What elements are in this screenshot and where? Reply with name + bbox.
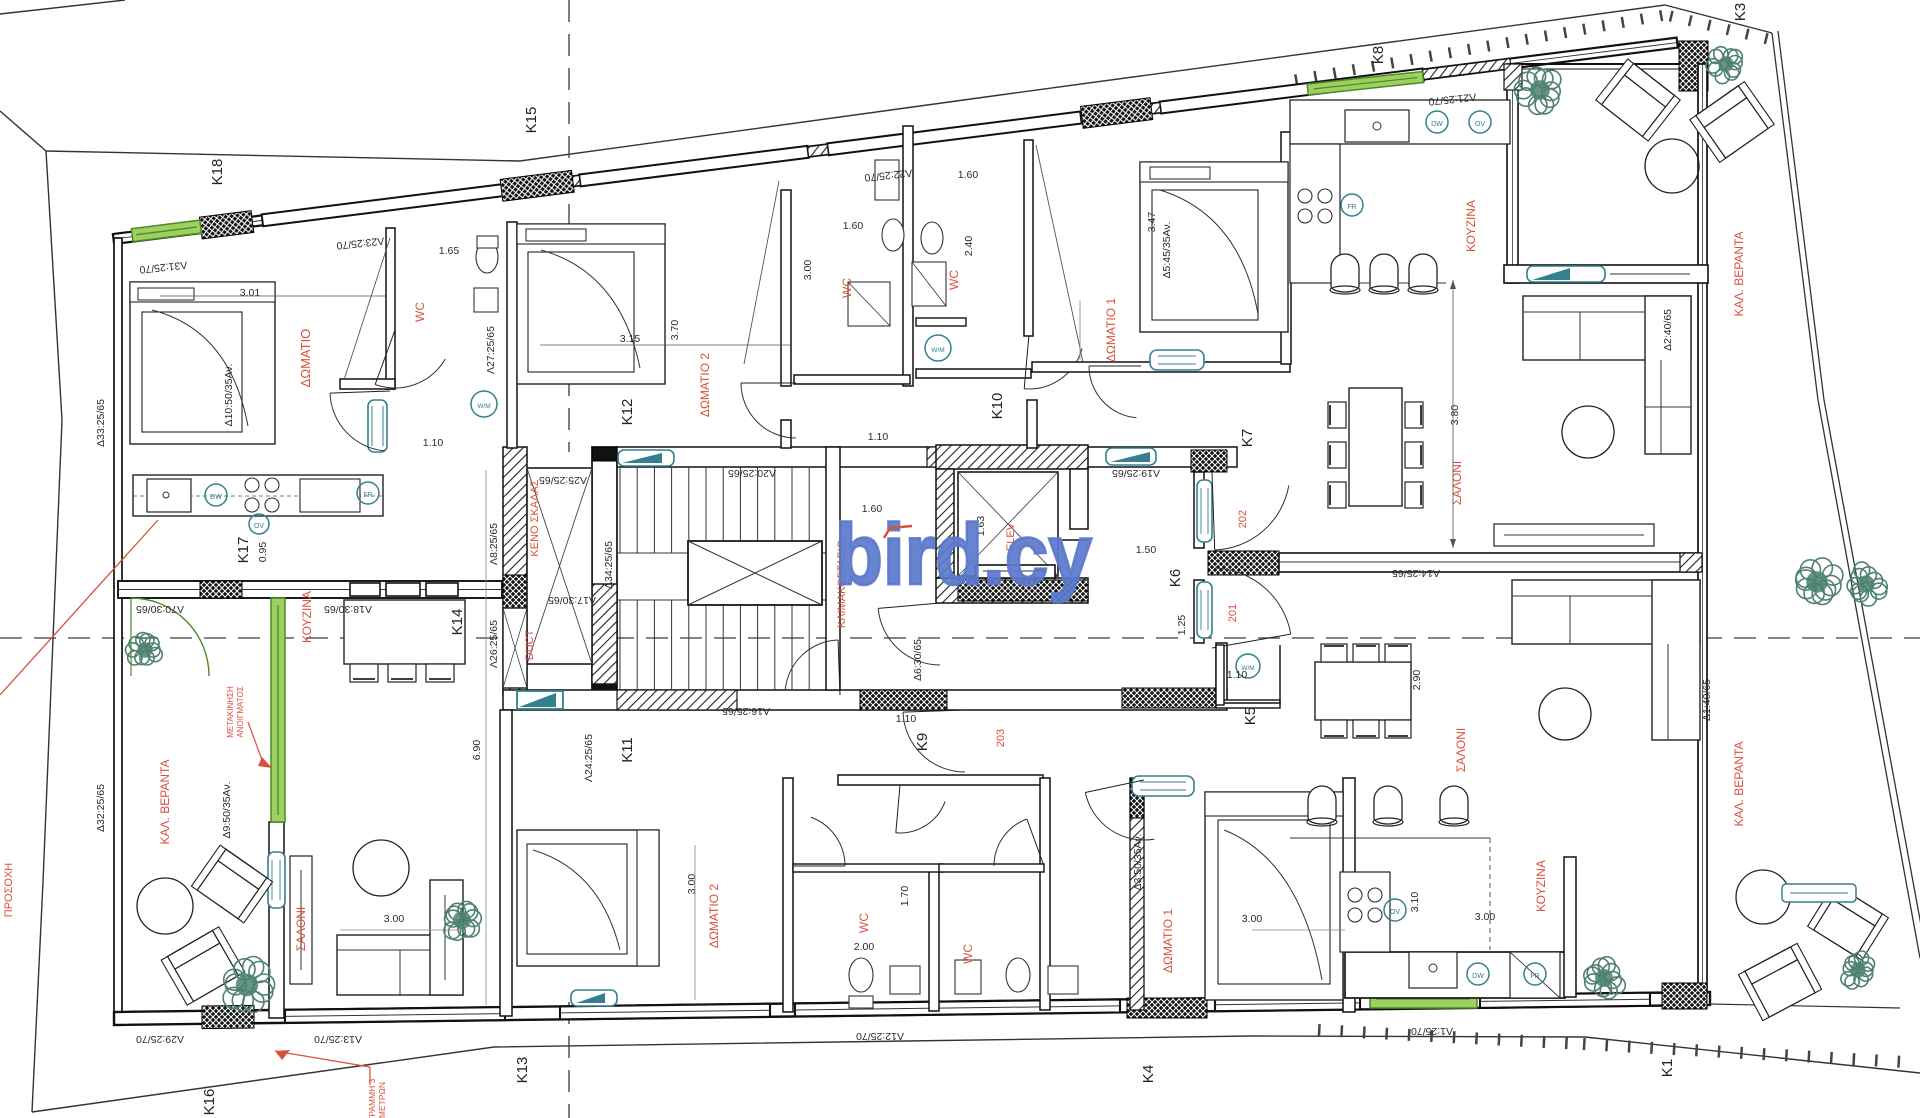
svg-text:1.10: 1.10 bbox=[1227, 669, 1248, 681]
svg-text:ΔΩΜΑΤΙΟ: ΔΩΜΑΤΙΟ bbox=[298, 329, 313, 388]
svg-text:DW: DW bbox=[1431, 121, 1443, 128]
svg-text:3.47: 3.47 bbox=[1146, 212, 1158, 233]
svg-text:ΔΩΜΑΤΙΟ 1: ΔΩΜΑΤΙΟ 1 bbox=[1161, 909, 1175, 973]
svg-text:FR: FR bbox=[363, 492, 372, 499]
svg-text:Λ8:25/65: Λ8:25/65 bbox=[488, 523, 500, 565]
svg-text:1.65: 1.65 bbox=[439, 245, 460, 257]
svg-text:W/M: W/M bbox=[931, 347, 944, 354]
svg-text:3.70: 3.70 bbox=[669, 320, 681, 341]
svg-text:OV: OV bbox=[1390, 909, 1400, 916]
svg-text:ΣΑΛΟΝΙ: ΣΑΛΟΝΙ bbox=[294, 907, 308, 952]
svg-text:K5: K5 bbox=[1242, 707, 1259, 725]
svg-text:Λ14:25/65: Λ14:25/65 bbox=[1392, 567, 1440, 579]
svg-text:K1: K1 bbox=[1659, 1059, 1676, 1077]
svg-text:DW: DW bbox=[210, 494, 222, 501]
svg-text:WC: WC bbox=[840, 278, 854, 298]
svg-text:K3: K3 bbox=[1732, 3, 1749, 21]
svg-text:Λ70:30/65: Λ70:30/65 bbox=[136, 603, 184, 615]
svg-text:3.00: 3.00 bbox=[384, 913, 405, 925]
svg-text:DUCT: DUCT bbox=[524, 629, 536, 660]
svg-text:3.80: 3.80 bbox=[1449, 405, 1461, 426]
svg-text:K11: K11 bbox=[619, 737, 636, 763]
svg-text:WC: WC bbox=[947, 270, 961, 290]
svg-text:Λ17:30/65: Λ17:30/65 bbox=[548, 594, 596, 606]
svg-text:Λ13:25/70: Λ13:25/70 bbox=[314, 1033, 362, 1045]
svg-text:K7: K7 bbox=[1239, 429, 1256, 447]
svg-text:Δ5:45/35Αν.: Δ5:45/35Αν. bbox=[1161, 221, 1173, 278]
svg-text:1.10: 1.10 bbox=[896, 713, 917, 725]
svg-text:ΚΑΛ. ΒΕΡΑΝΤΑ: ΚΑΛ. ΒΕΡΑΝΤΑ bbox=[1732, 742, 1746, 827]
svg-text:DW: DW bbox=[1472, 973, 1484, 980]
svg-text:Δ10:50/35Αν.: Δ10:50/35Αν. bbox=[223, 364, 235, 427]
svg-text:Δ1:40/65: Δ1:40/65 bbox=[1701, 679, 1713, 721]
svg-text:1.10: 1.10 bbox=[868, 431, 889, 443]
svg-text:K17: K17 bbox=[235, 537, 252, 564]
svg-text:K4: K4 bbox=[1140, 1065, 1157, 1083]
svg-text:2.40: 2.40 bbox=[963, 236, 975, 257]
svg-text:2.90: 2.90 bbox=[1411, 670, 1423, 691]
svg-text:ΜΕΤΑΚΙΝΗΣΗ: ΜΕΤΑΚΙΝΗΣΗ bbox=[226, 686, 235, 738]
svg-text:WC: WC bbox=[413, 302, 427, 322]
svg-text:ΠΡΟΣΟΧΗ: ΠΡΟΣΟΧΗ bbox=[3, 863, 15, 918]
svg-text:Δ34:25/65: Δ34:25/65 bbox=[603, 541, 615, 589]
svg-text:Δ6:30/65: Δ6:30/65 bbox=[912, 639, 924, 681]
svg-text:ΣΑΛΟΝΙ: ΣΑΛΟΝΙ bbox=[1454, 728, 1468, 773]
svg-text:K13: K13 bbox=[514, 1057, 531, 1084]
svg-text:K14: K14 bbox=[449, 609, 466, 636]
svg-text:Δ3:50/35Αν.: Δ3:50/35Αν. bbox=[1132, 833, 1144, 890]
svg-text:ΜΕΤΡΩΝ: ΜΕΤΡΩΝ bbox=[377, 1082, 387, 1118]
svg-text:3.10: 3.10 bbox=[1409, 892, 1421, 913]
svg-text:ΔΩΜΑΤΙΟ 1: ΔΩΜΑΤΙΟ 1 bbox=[1104, 298, 1118, 362]
svg-text:Δ33:25/65: Δ33:25/65 bbox=[95, 399, 107, 447]
svg-text:ΚΟΥΖΙΝΑ: ΚΟΥΖΙΝΑ bbox=[1464, 200, 1478, 252]
svg-text:Λ24:25/65: Λ24:25/65 bbox=[583, 734, 595, 782]
svg-text:K6: K6 bbox=[1167, 569, 1184, 587]
svg-text:OV: OV bbox=[254, 523, 264, 530]
svg-text:ΚΕΝΟ ΣΚΑΛΑΣ: ΚΕΝΟ ΣΚΑΛΑΣ bbox=[529, 479, 541, 556]
svg-text:3.00: 3.00 bbox=[1475, 911, 1496, 923]
svg-text:ΚΟΥΖΙΝΑ: ΚΟΥΖΙΝΑ bbox=[300, 591, 314, 643]
svg-text:ΚΑΛ. ΒΕΡΑΝΤΑ: ΚΑΛ. ΒΕΡΑΝΤΑ bbox=[1732, 232, 1746, 317]
svg-text:1.70: 1.70 bbox=[899, 886, 911, 907]
svg-text:K15: K15 bbox=[523, 107, 540, 134]
svg-text:6.90: 6.90 bbox=[471, 740, 483, 761]
svg-text:3.01: 3.01 bbox=[240, 287, 261, 299]
svg-text:Λ19:25/65: Λ19:25/65 bbox=[1112, 467, 1160, 479]
svg-text:1.10: 1.10 bbox=[423, 437, 444, 449]
svg-text:Λ16:25/65: Λ16:25/65 bbox=[722, 705, 770, 717]
svg-text:K18: K18 bbox=[209, 159, 226, 186]
svg-text:FR: FR bbox=[1347, 204, 1356, 211]
svg-text:2.00: 2.00 bbox=[854, 941, 875, 953]
svg-text:ΔΩΜΑΤΙΟ 2: ΔΩΜΑΤΙΟ 2 bbox=[698, 353, 712, 417]
svg-text:Δ2:40/65: Δ2:40/65 bbox=[1662, 309, 1674, 351]
svg-text:Λ26:25/65: Λ26:25/65 bbox=[488, 620, 500, 668]
svg-text:W/M: W/M bbox=[477, 403, 490, 410]
svg-text:1.50: 1.50 bbox=[1136, 544, 1157, 556]
svg-text:K16: K16 bbox=[201, 1089, 218, 1116]
svg-text:bird.cy: bird.cy bbox=[835, 507, 1092, 603]
svg-text:WC: WC bbox=[857, 913, 871, 933]
svg-text:Λ18:30/65: Λ18:30/65 bbox=[324, 603, 372, 615]
svg-text:K8: K8 bbox=[1370, 46, 1387, 64]
svg-text:ΓΡΑΜΜΗ 3: ΓΡΑΜΜΗ 3 bbox=[367, 1078, 377, 1118]
svg-text:Λ25:25/65: Λ25:25/65 bbox=[539, 474, 587, 486]
svg-text:OV: OV bbox=[1475, 121, 1485, 128]
svg-text:0.95: 0.95 bbox=[257, 542, 269, 563]
svg-text:ΚΑΛ. ΒΕΡΑΝΤΑ: ΚΑΛ. ΒΕΡΑΝΤΑ bbox=[158, 760, 172, 845]
svg-text:K9: K9 bbox=[914, 733, 931, 751]
svg-text:K10: K10 bbox=[989, 393, 1006, 420]
svg-text:Λ20:25/65: Λ20:25/65 bbox=[728, 467, 776, 479]
svg-text:ΔΩΜΑΤΙΟ 2: ΔΩΜΑΤΙΟ 2 bbox=[707, 884, 721, 948]
svg-text:WC: WC bbox=[961, 944, 975, 964]
svg-text:Λ12:25/70: Λ12:25/70 bbox=[856, 1030, 904, 1042]
svg-text:Λ29:25/70: Λ29:25/70 bbox=[136, 1033, 184, 1045]
svg-text:202: 202 bbox=[1237, 510, 1249, 528]
svg-text:3.00: 3.00 bbox=[1242, 913, 1263, 925]
svg-text:1.25: 1.25 bbox=[1176, 615, 1188, 636]
svg-text:3.15: 3.15 bbox=[620, 333, 641, 345]
svg-text:Δ9:50/35Αν.: Δ9:50/35Αν. bbox=[221, 781, 233, 838]
svg-text:Λ1:25/70: Λ1:25/70 bbox=[1411, 1025, 1453, 1037]
svg-text:3.00: 3.00 bbox=[686, 874, 698, 895]
svg-text:Λ27:25/65: Λ27:25/65 bbox=[485, 326, 497, 374]
svg-text:3.00: 3.00 bbox=[802, 260, 814, 281]
svg-text:K12: K12 bbox=[619, 399, 636, 426]
svg-text:Δ32:25/65: Δ32:25/65 bbox=[95, 784, 107, 832]
svg-text:ΣΑΛΟΝΙ: ΣΑΛΟΝΙ bbox=[1450, 461, 1464, 506]
svg-text:ΚΟΥΖΙΝΑ: ΚΟΥΖΙΝΑ bbox=[1534, 860, 1548, 912]
svg-text:1.60: 1.60 bbox=[958, 169, 979, 181]
svg-text:203: 203 bbox=[995, 729, 1007, 747]
svg-text:FR: FR bbox=[1530, 973, 1539, 980]
svg-text:ΑΝΟΙΓΜΑΤΟΣ: ΑΝΟΙΓΜΑΤΟΣ bbox=[236, 686, 245, 737]
svg-text:1.60: 1.60 bbox=[843, 220, 864, 232]
svg-text:201: 201 bbox=[1227, 604, 1239, 622]
